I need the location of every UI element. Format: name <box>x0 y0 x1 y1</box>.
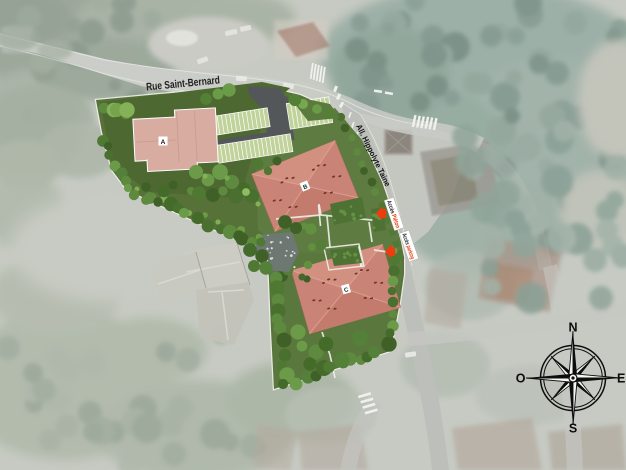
svg-text:N: N <box>568 321 577 335</box>
svg-text:S: S <box>569 422 577 436</box>
svg-text:A: A <box>161 139 166 146</box>
svg-text:E: E <box>617 372 625 386</box>
svg-text:O: O <box>516 372 526 386</box>
